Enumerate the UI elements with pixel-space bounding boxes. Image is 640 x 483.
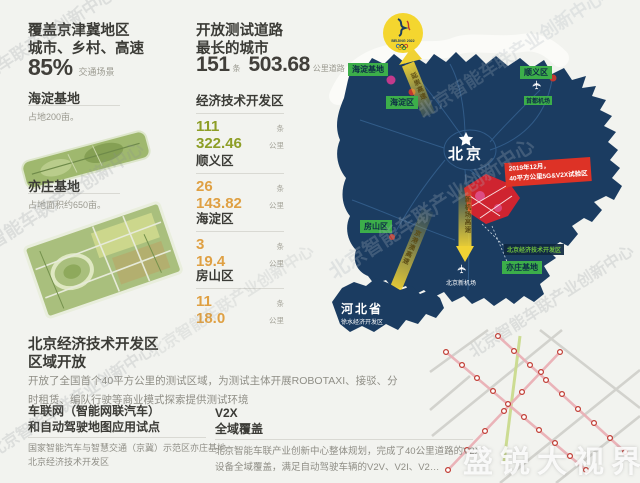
district-name: 经济技术开发区: [196, 90, 284, 109]
district-roads: 26: [196, 178, 213, 195]
v2x-section-title: V2X 全域覆盖: [215, 406, 263, 437]
divider: [196, 288, 284, 289]
iov-section-title: 车联网（智能网联汽车） 和自动驾驶地图应用试点: [28, 404, 160, 435]
coverage-title-line1: 覆盖京津冀地区: [28, 22, 144, 40]
district-stat-fangshan: 房山区 11条 18.0公里: [196, 265, 284, 327]
etdz-section-title: 北京经济技术开发区 区域开放: [28, 336, 159, 372]
iov-desc-line1: 国家智能汽车与智慧交通（京冀）示范区亦庄基地: [28, 442, 228, 456]
yizhuang-base-desc: 占地面积约650亩。: [28, 198, 106, 211]
capital-airport-plane-icon: ✈: [530, 80, 544, 90]
total-roads-unit: 条: [233, 63, 241, 74]
divider: [196, 173, 284, 174]
roads-unit: 条: [277, 123, 285, 134]
total-km-unit: 公里道路: [313, 63, 345, 74]
divider: [215, 439, 473, 440]
district-roads: 3: [196, 236, 204, 253]
divider: [28, 193, 120, 194]
map-label-hebei-sub: 徐水经济开发区: [341, 317, 383, 326]
olympic-emblem-icon: BEIJING 2022: [383, 13, 423, 53]
district-name: 房山区: [196, 265, 284, 284]
yizhuang-base-aerial-image: [24, 202, 182, 318]
map-label-etdz: 北京经济技术开发区: [504, 244, 564, 255]
new-airport-plane-icon: ✈: [455, 264, 469, 274]
stats-header-line1: 开放测试道路: [196, 22, 283, 40]
stats-totals: 151 条 503.68 公里道路: [196, 53, 345, 77]
svg-text:BEIJING 2022: BEIJING 2022: [391, 39, 414, 43]
divider: [28, 105, 120, 106]
district-stat-haidian: 海淀区 3条 19.4公里: [196, 208, 284, 270]
map-label-haidian-base: 海淀基地: [348, 63, 388, 76]
v2x-title-line2: 全域覆盖: [215, 422, 263, 438]
coverage-percent: 85%: [28, 54, 73, 81]
coverage-title: 覆盖京津冀地区 城市、乡村、高速: [28, 22, 144, 58]
map-label-hebei: 河北省: [341, 300, 383, 317]
coverage-stat: 85% 交通场景: [28, 54, 115, 81]
coverage-percent-label: 交通场景: [79, 65, 115, 78]
roads-unit: 条: [277, 241, 285, 252]
map-label-new-airport: 北京新机场: [446, 278, 476, 287]
haidian-base-marker: [387, 76, 396, 85]
infographic-page: BEIJING 2022: [0, 0, 640, 483]
map-label-fangshan: 房山区: [360, 220, 392, 233]
divider: [196, 113, 284, 114]
map-label-yizhuang-base: 亦庄基地: [502, 261, 542, 274]
district-roads: 111: [196, 118, 219, 135]
iov-desc-line2: 北京经济技术开发区: [28, 456, 228, 470]
map-label-capital-airport: 首都机场: [524, 96, 552, 105]
district-name: 顺义区: [196, 150, 284, 169]
etdz-title-line2: 区域开放: [28, 354, 159, 372]
total-km: 503.68: [249, 53, 310, 77]
map-label-beijing: 北京: [448, 143, 484, 164]
arrow-label-new-airport-expressway: 新机场高速: [461, 196, 471, 234]
divider: [28, 437, 206, 438]
roads-unit: 条: [277, 298, 285, 309]
iov-section-desc: 国家智能汽车与智慧交通（京冀）示范区亦庄基地 北京经济技术开发区: [28, 442, 228, 469]
haidian-base-desc: 占地200亩。: [28, 110, 79, 123]
fangshan-marker: [389, 234, 395, 240]
map-label-shunyi: 顺义区: [520, 66, 552, 79]
district-stat-shunyi: 顺义区 26条 143.82公里: [196, 150, 284, 212]
iov-title-line1: 车联网（智能网联汽车）: [28, 404, 160, 420]
roads-unit: 条: [277, 183, 285, 194]
divider: [196, 231, 284, 232]
iov-title-line2: 和自动驾驶地图应用试点: [28, 420, 160, 436]
district-name: 海淀区: [196, 208, 284, 227]
total-roads: 151: [196, 53, 230, 77]
etdz-title-line1: 北京经济技术开发区: [28, 336, 159, 354]
district-roads: 11: [196, 293, 212, 310]
map-label-haidian-district: 海淀区: [386, 96, 418, 109]
km-unit: 公里: [269, 315, 284, 326]
v2x-title-line1: V2X: [215, 406, 263, 422]
district-km: 18.0: [196, 310, 225, 327]
district-stat-etdz: 经济技术开发区 111条 322.46公里: [196, 90, 284, 152]
v2x-section-desc: 北京智能车联产业创新中心整体规划，完成了40公里道路的V2X设备全域覆盖，满足自…: [215, 444, 483, 478]
